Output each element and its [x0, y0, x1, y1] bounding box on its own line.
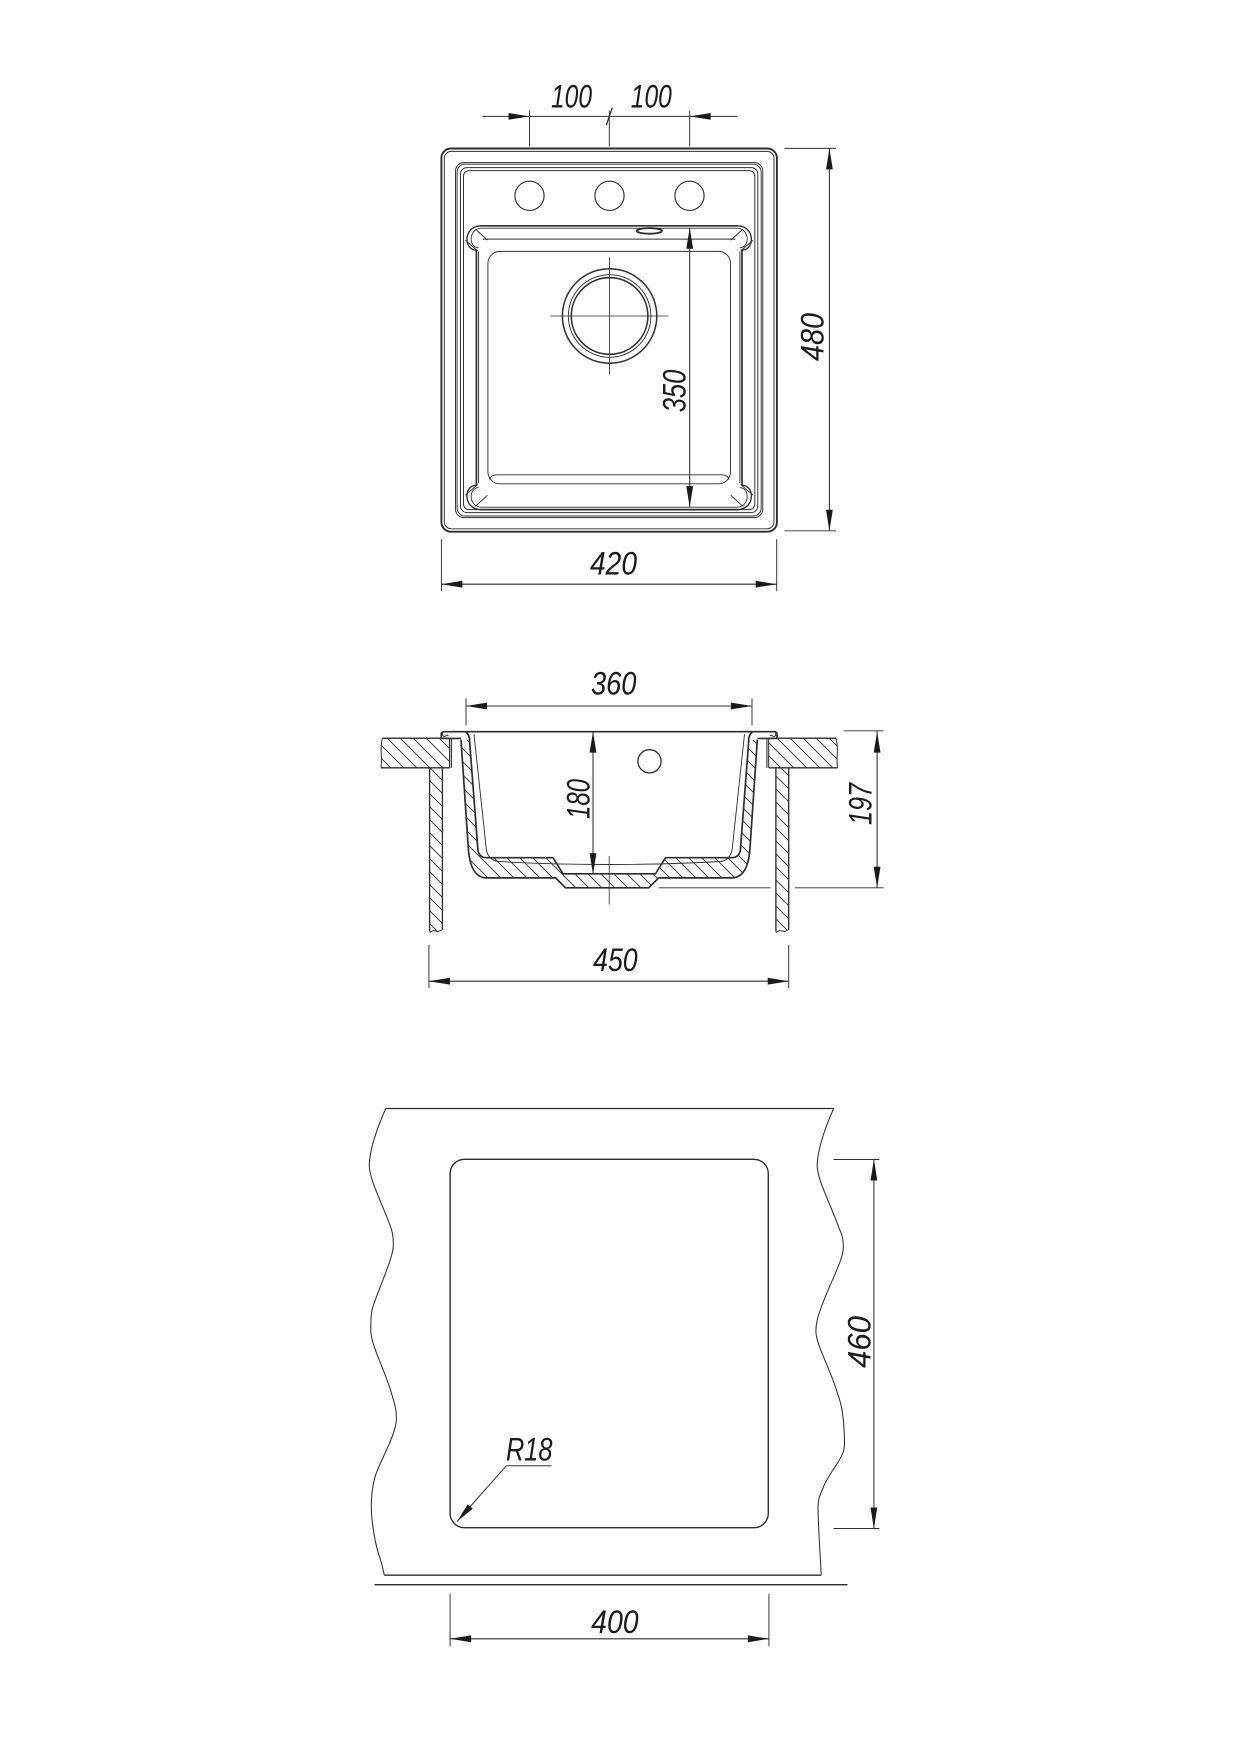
svg-text:100: 100	[631, 79, 672, 115]
svg-text:R18: R18	[506, 1431, 553, 1467]
svg-text:420: 420	[590, 546, 637, 582]
svg-text:450: 450	[593, 942, 638, 978]
svg-text:180: 180	[561, 779, 597, 819]
svg-text:197: 197	[843, 782, 879, 825]
svg-text:350: 350	[657, 370, 693, 413]
svg-text:100: 100	[551, 79, 592, 115]
svg-text:460: 460	[841, 1316, 877, 1368]
svg-text:480: 480	[795, 313, 831, 361]
svg-text:360: 360	[591, 666, 637, 702]
svg-text:400: 400	[591, 1604, 639, 1640]
